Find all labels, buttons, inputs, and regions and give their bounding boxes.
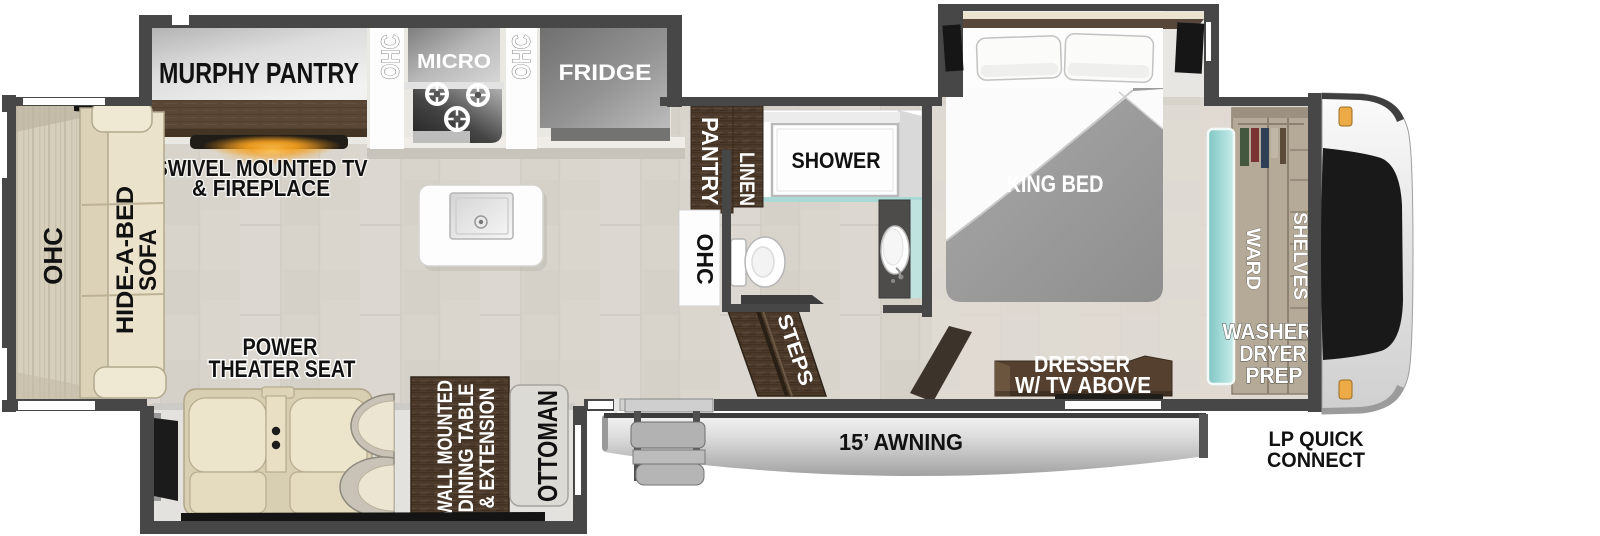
svg-text:FRIDGE: FRIDGE [559, 60, 652, 85]
svg-text:OHC: OHC [508, 35, 536, 80]
svg-text:& EXTENSION: & EXTENSION [476, 388, 499, 509]
svg-text:MURPHY PANTRY: MURPHY PANTRY [159, 58, 359, 90]
svg-text:SHELVES: SHELVES [1289, 212, 1310, 300]
svg-text:LINEN: LINEN [735, 152, 758, 206]
svg-text:15’ AWNING: 15’ AWNING [839, 429, 963, 455]
svg-text:SHOWER: SHOWER [792, 148, 881, 173]
svg-text:OHC: OHC [692, 233, 718, 284]
svg-text:& FIREPLACE: & FIREPLACE [192, 175, 330, 201]
svg-text:CONNECT: CONNECT [1267, 449, 1365, 472]
svg-text:WARD: WARD [1242, 228, 1263, 290]
svg-text:OHC: OHC [377, 35, 405, 80]
svg-text:PREP: PREP [1246, 363, 1303, 388]
svg-text:MICRO: MICRO [417, 51, 491, 73]
svg-text:PANTRY: PANTRY [697, 117, 723, 205]
svg-text:OHC: OHC [38, 227, 68, 285]
svg-text:OTTOMAN: OTTOMAN [532, 390, 563, 502]
svg-text:KING BED: KING BED [1007, 171, 1104, 198]
svg-text:DINING TABLE: DINING TABLE [455, 384, 478, 513]
svg-text:SOFA: SOFA [135, 229, 162, 291]
svg-text:WALL MOUNTED: WALL MOUNTED [434, 380, 457, 516]
svg-text:THEATER SEAT: THEATER SEAT [209, 356, 356, 383]
svg-text:LP QUICK: LP QUICK [1269, 428, 1364, 451]
